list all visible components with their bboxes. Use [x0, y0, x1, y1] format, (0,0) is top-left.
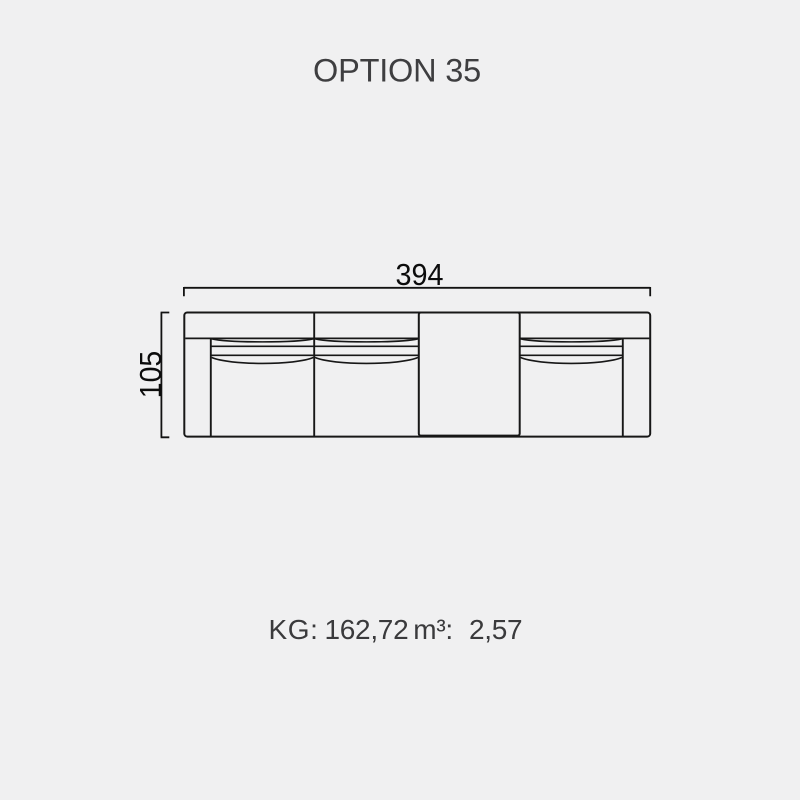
svg-text:KG:162,72m³:2,57: KG:162,72m³:2,57 — [269, 614, 523, 645]
svg-text:394: 394 — [396, 257, 444, 292]
svg-text:OPTION 35: OPTION 35 — [313, 53, 481, 89]
svg-text:105: 105 — [133, 351, 168, 399]
